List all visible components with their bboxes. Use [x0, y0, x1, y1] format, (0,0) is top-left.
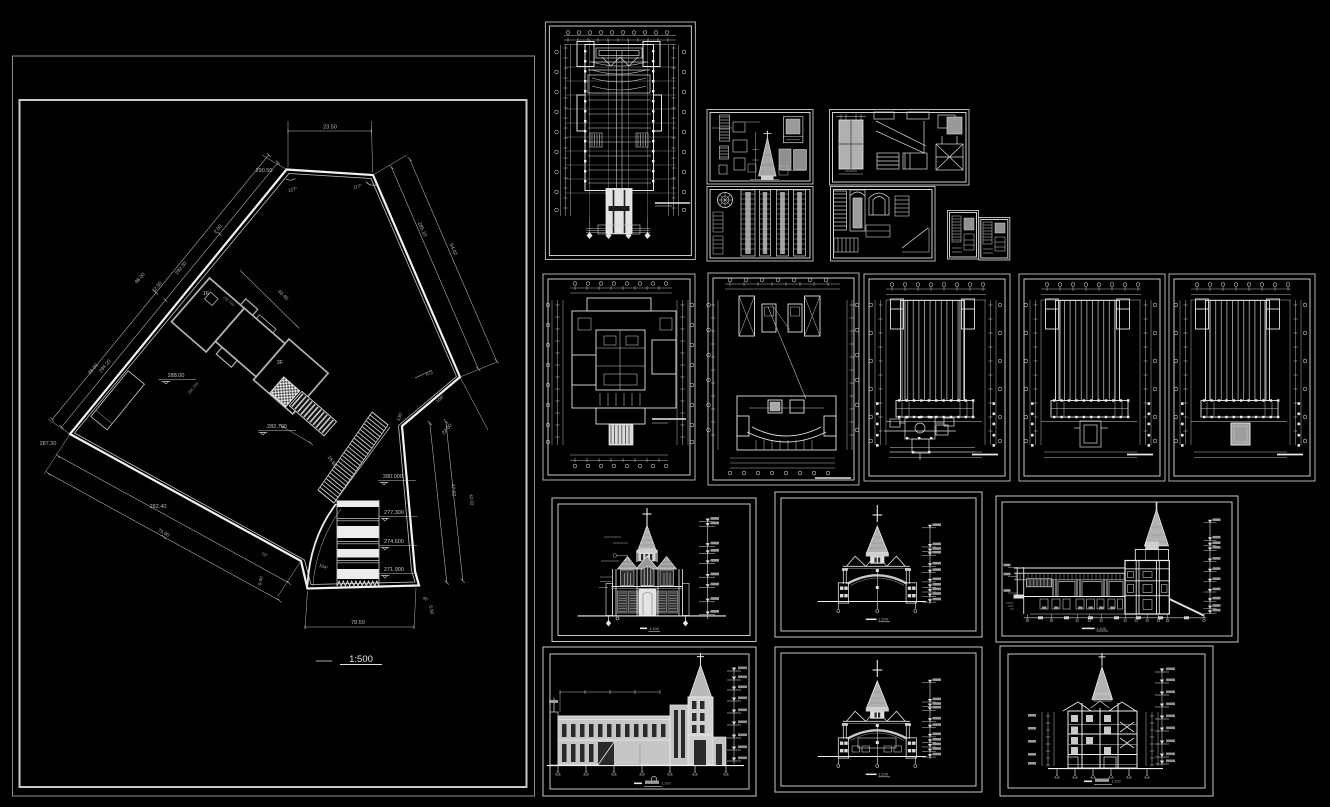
svg-text:274.600: 274.600	[384, 539, 404, 545]
svg-text:290.50: 290.50	[256, 168, 273, 174]
svg-text:1:100: 1:100	[649, 626, 660, 631]
svg-text:1:100: 1:100	[1096, 626, 1107, 631]
svg-text:271.900: 271.900	[384, 567, 404, 573]
svg-text:23.50: 23.50	[323, 125, 337, 131]
svg-text:1:100: 1:100	[878, 617, 889, 622]
svg-text:282.700: 282.700	[267, 424, 287, 430]
svg-text:277.300: 277.300	[384, 510, 404, 516]
svg-text:288.00: 288.00	[168, 373, 185, 379]
svg-text:1:100: 1:100	[662, 782, 671, 786]
svg-text:282.40: 282.40	[150, 504, 167, 510]
svg-text:78.50: 78.50	[351, 620, 365, 626]
svg-text:1:100: 1:100	[878, 772, 889, 777]
svg-text:287.30: 287.30	[40, 441, 57, 447]
svg-text:1:100: 1:100	[1112, 780, 1121, 784]
svg-text:280.000: 280.000	[383, 474, 403, 480]
svg-text:3F: 3F	[277, 360, 284, 366]
svg-text:1:500: 1:500	[349, 654, 373, 665]
svg-text:1F: 1F	[203, 291, 210, 297]
